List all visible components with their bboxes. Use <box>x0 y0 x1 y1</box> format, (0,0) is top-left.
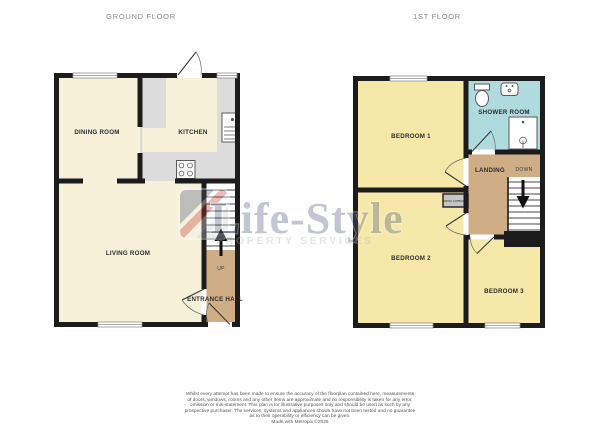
hob-icon <box>177 161 196 179</box>
living-room-label: LIVING ROOM <box>106 250 150 257</box>
landing-label: LANDING <box>475 167 505 174</box>
dining-room-label: DINING ROOM <box>74 129 119 136</box>
bedroom3-label: BEDROOM 3 <box>484 288 524 295</box>
stairs-up-label: UP <box>217 266 225 272</box>
entrance-hall-area <box>207 250 238 322</box>
ground-floor-title: GROUND FLOOR <box>106 12 176 21</box>
kitchen-label: KITCHEN <box>178 129 208 136</box>
disclaimer-credit: Made with Metropix ©2025 <box>0 420 600 426</box>
window <box>390 76 427 81</box>
kitchen-dining-opening-floor <box>143 128 167 152</box>
window <box>73 73 117 78</box>
watermark: Life-Style PROPERTY SERVICES <box>179 189 404 247</box>
basin-icon <box>501 83 518 96</box>
stairs-down-label: DOWN <box>515 167 532 173</box>
landing-area-lower <box>466 177 508 239</box>
floorplan-page: DINING ROOM KITCHEN LIVING ROOM ENTRANCE… <box>0 0 600 429</box>
back-door <box>177 52 202 78</box>
watermark-tagline: PROPERTY SERVICES <box>216 235 374 247</box>
disclaimer-text: Whilst every attempt has been made to en… <box>0 392 600 426</box>
window <box>485 323 520 328</box>
kitchen-floor <box>166 76 217 152</box>
bedroom2-label: BEDROOM 2 <box>391 255 431 262</box>
floorplan-drawing: DINING ROOM KITCHEN LIVING ROOM ENTRANCE… <box>0 0 600 429</box>
window <box>217 73 237 78</box>
window <box>98 322 142 327</box>
sink-unit-icon <box>222 113 237 142</box>
window <box>390 323 433 328</box>
toilet-icon <box>475 84 490 107</box>
shower-room-label: SHOWER ROOM <box>478 109 530 116</box>
entrance-hall-label: ENTRANCE HALL <box>187 296 243 303</box>
bedroom1-label: BEDROOM 1 <box>391 133 431 140</box>
shower-icon <box>509 117 537 149</box>
first-floor-title: 1ST FLOOR <box>413 12 461 21</box>
